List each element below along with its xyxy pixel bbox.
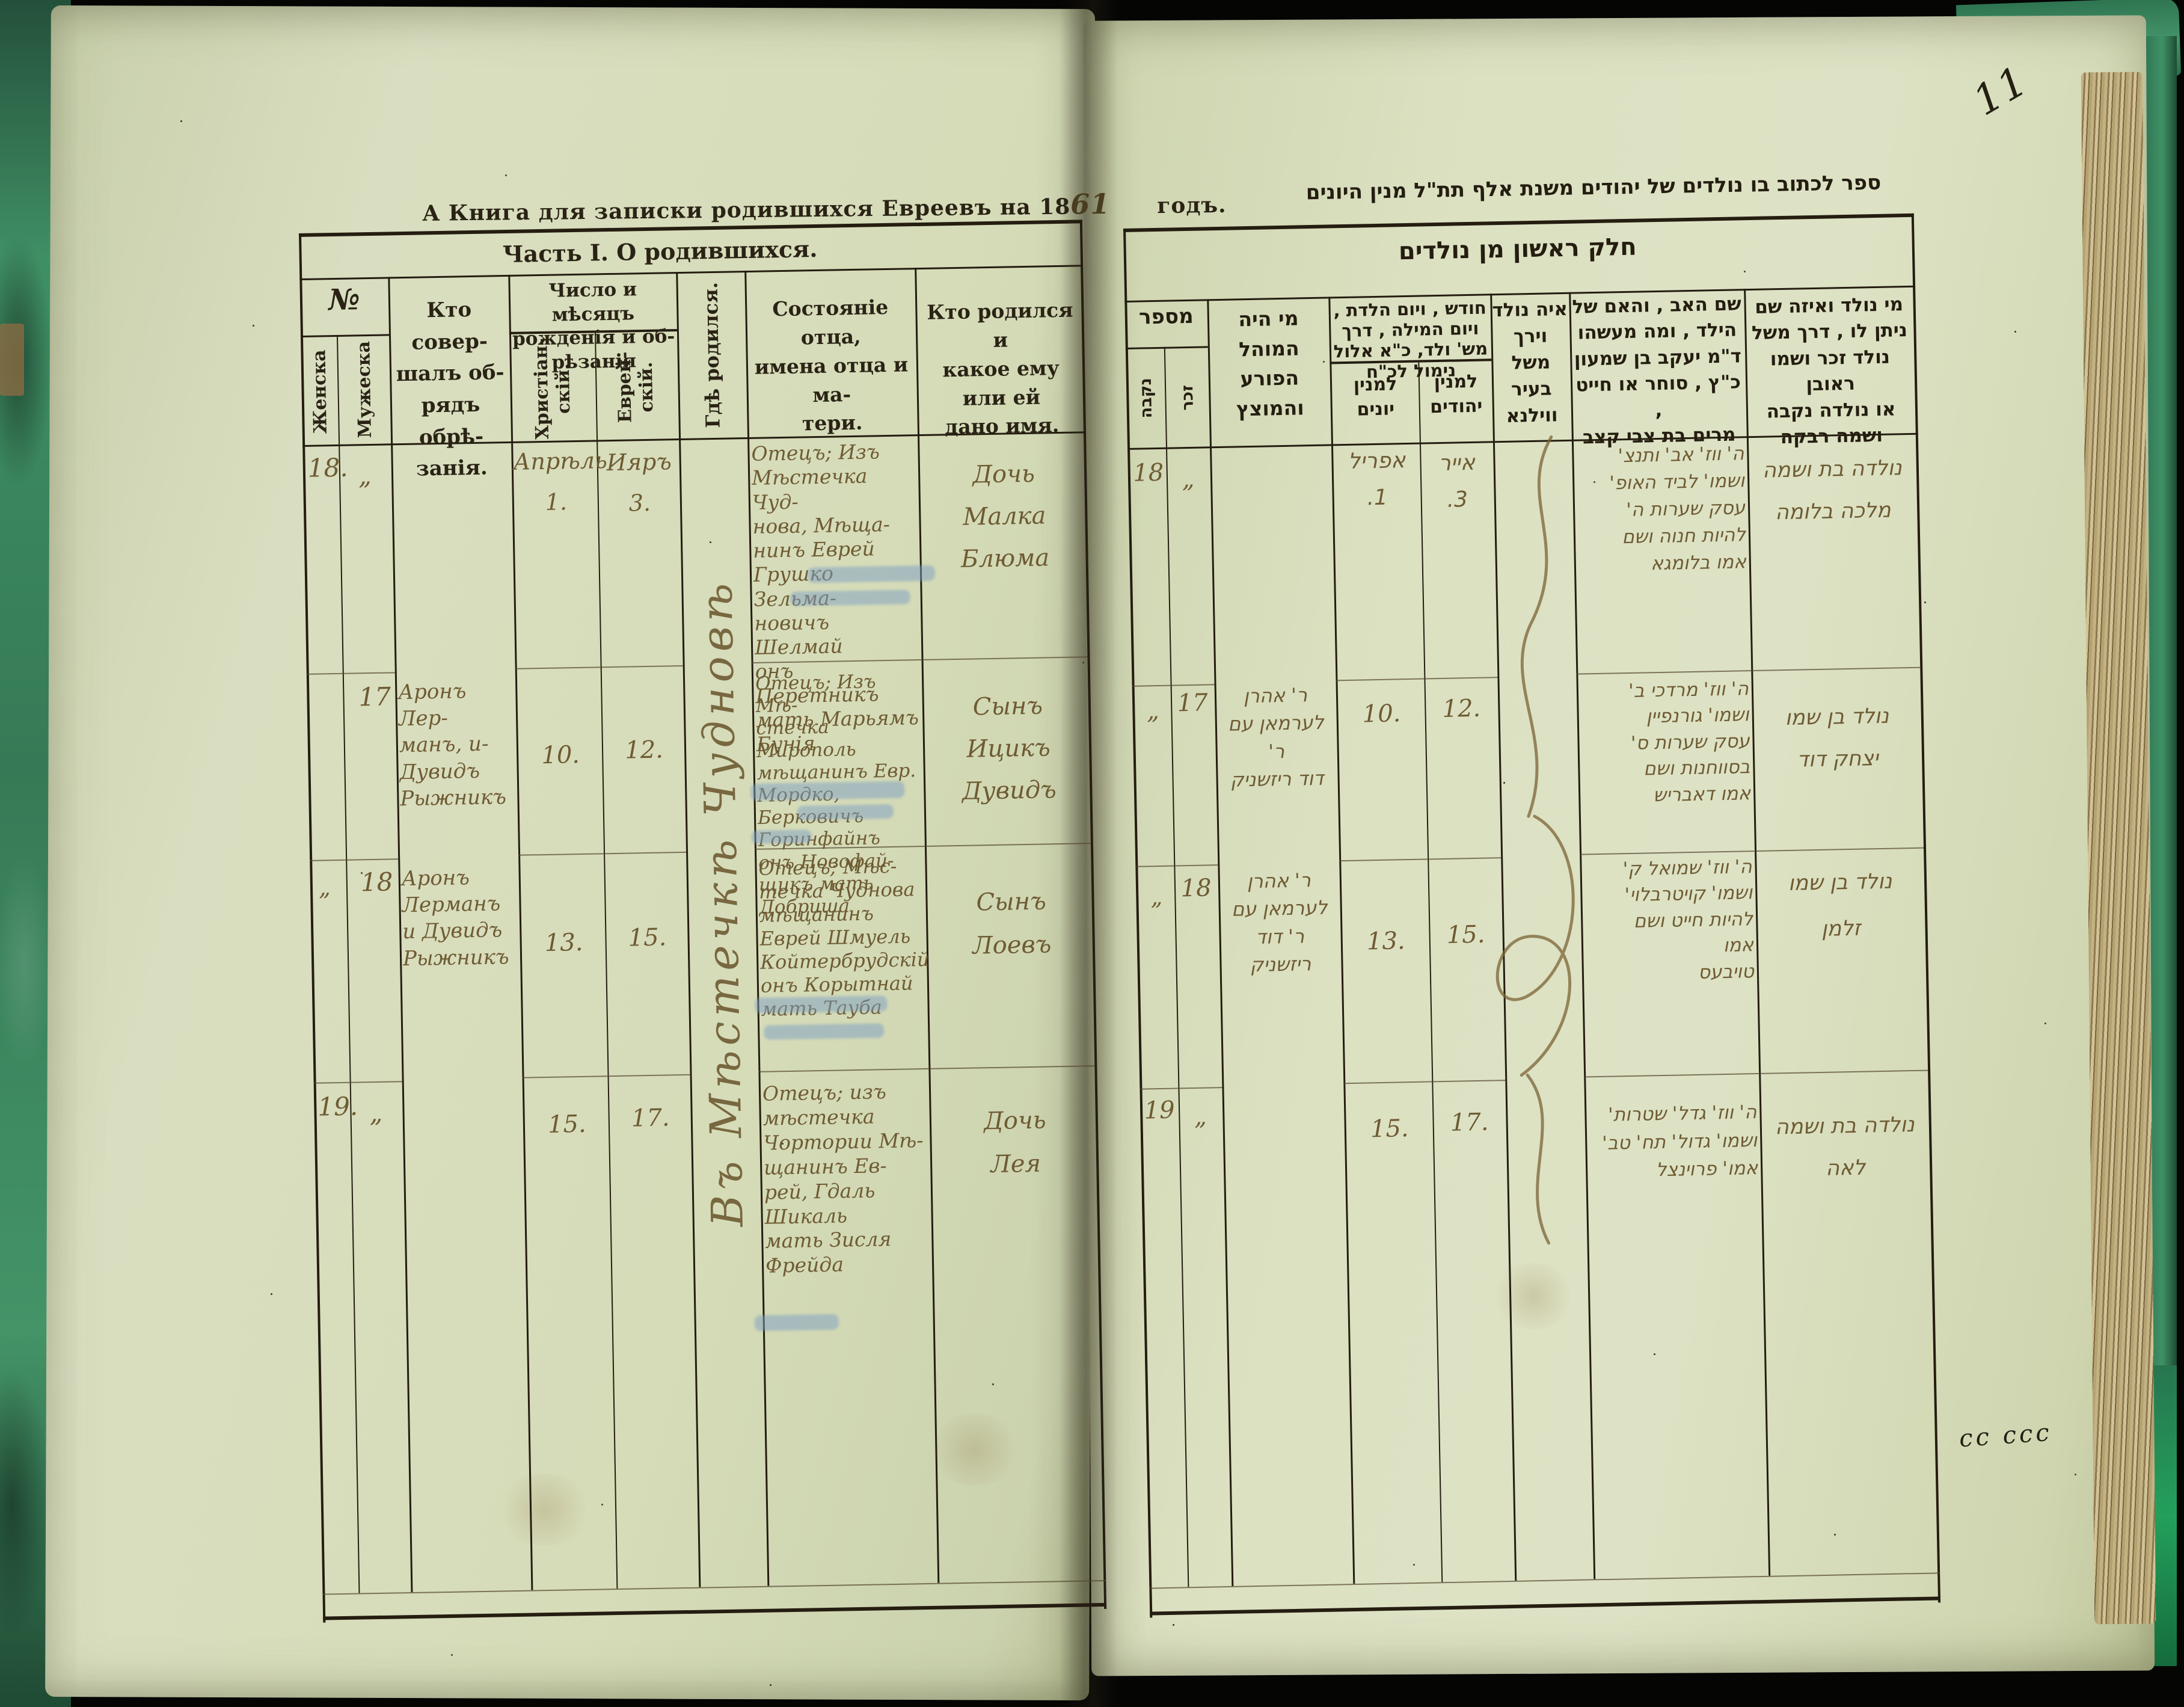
cell-r4-date-yevanim: 15. (1347, 1114, 1432, 1143)
rule-line (1149, 1572, 1940, 1589)
censor-smudge (797, 804, 894, 820)
cell-r4-child-he: נולדה בת ושמה לאה (1761, 1104, 1929, 1191)
rule-line (1150, 1596, 1940, 1615)
left-title-god: годъ. (1157, 192, 1227, 218)
col-header-where-he: איה נולד וירך משל בעיר ווילנא (1491, 296, 1570, 429)
cell-r3-child: Сынъ Лоевъ (930, 879, 1093, 968)
col-header-christian-label: Христіан- скій. (530, 337, 575, 440)
cell-r4-male-no: „ (369, 1098, 400, 1128)
row-separator (1336, 677, 1497, 681)
cell-r4-date-yehudim: 17. (1435, 1108, 1504, 1137)
censor-smudge (751, 829, 811, 844)
censor-smudge (755, 995, 887, 1013)
cell-r1-child: Дочь Малка Блюма (922, 452, 1087, 581)
cell-r3-performer: Аронъ Лерманъ и Дувидъ Рыжникъ (401, 864, 520, 972)
rule-line (322, 1580, 1106, 1595)
col-header-zakhar-label: זכר (1178, 385, 1197, 411)
cell-r2-male-no: 17 (358, 681, 395, 712)
cell-r1-male-no: „ (358, 460, 389, 490)
cell-r2-zakhar: 17 (1173, 689, 1212, 717)
scanned-metrical-book: А Книга для записки родившихся Евреевъ н… (0, 0, 2184, 1707)
cell-r4-jewish-date: 17. (610, 1104, 691, 1133)
row-separator (314, 1081, 402, 1084)
cell-r2-performer: Аронъ Лер- манъ, и- Дувидъ Рыжникъ (398, 677, 517, 812)
row-separator (758, 1065, 1094, 1072)
cell-r4-zakhar: „ (1181, 1103, 1220, 1131)
cell-r4-female-no: 19. (317, 1092, 352, 1122)
cell-r3-child-he: נולד בן שמו זלמן (1756, 858, 1924, 954)
cell-r3-father-he: ה' ווז' שמואל ק' ושמו' קויטרבלוי' להיות … (1581, 854, 1754, 988)
cell-r4-christian-date: 15. (525, 1110, 610, 1139)
cell-r2-mohel: ר' אהרן לערמאן עם ר' דוד ריזשניק (1216, 680, 1337, 794)
cell-r3-mohel: ר' אהרן לערמאן עם ר' דוד ריזשניק (1219, 866, 1340, 979)
col-header-female: Женска (302, 341, 337, 443)
col-header-nekeva-label: נקבה (1136, 378, 1155, 419)
col-header-male-label: Мужеска (353, 341, 376, 438)
col-header-female-label: Женска (308, 349, 331, 434)
col-header-father-he: שם האב , והאם של הילד , ומה מעשהו ד"מ יע… (1571, 291, 1745, 451)
cell-r1-zakhar: „ (1169, 465, 1208, 493)
col-header-performer: Кто совер- шалъ об- рядъ обрѣ- занія. (390, 294, 511, 485)
censor-smudge (750, 781, 904, 801)
left-table: Часть I. О родившихся. № Женска Мужеска … (299, 220, 1106, 1634)
cell-r2-jewish-date: 12. (604, 736, 685, 764)
row-separator (1135, 864, 1218, 867)
censor-smudge (755, 1314, 839, 1331)
cell-r3-zakhar: 18 (1177, 874, 1216, 902)
paper-speckle (180, 120, 182, 122)
cell-r1-nekeva: 18 (1131, 459, 1165, 487)
tape-mark (0, 324, 24, 396)
col-header-where-label: Гдѣ родился. (699, 281, 725, 428)
censor-smudge (764, 1023, 884, 1039)
cell-r2-nekeva: „ (1137, 697, 1169, 725)
col-header-minyan-yevanim: למנין יונים (1333, 372, 1419, 423)
rule-line (1126, 346, 1208, 349)
cell-r4-child: Дочь Лея (933, 1098, 1097, 1187)
row-separator (1132, 684, 1215, 687)
cell-r1-date-yevanim: אפריל 1. (1334, 442, 1420, 517)
col-header-christian: Христіан- скій. (531, 337, 575, 440)
censor-smudge (790, 589, 910, 606)
row-separator (515, 665, 683, 669)
left-title-year-handwritten: 61 (1070, 188, 1111, 221)
row-separator (1576, 667, 1920, 675)
row-separator (1584, 1070, 1928, 1078)
row-separator (310, 858, 398, 861)
col-header-mispar: מספר (1124, 304, 1207, 330)
col-header-nekeva: נקבה (1127, 355, 1165, 441)
cell-r2-father-he: ה' ווז' מרדכי ב' ושמו' גורנפיין עסק שערו… (1578, 676, 1751, 810)
row-separator (1343, 1080, 1505, 1084)
right-table: חלק ראשון מן נולדים מספר נקבה זכר מי היה… (1123, 214, 1940, 1630)
rule-line (323, 1603, 1106, 1620)
cell-r3-date-yevanim: 13. (1343, 926, 1428, 956)
where-born-script-text: Въ Мѣстечкѣ Чудновѣ (691, 578, 753, 1227)
rule-line (1418, 363, 1443, 1582)
col-header-where: Гдѣ родился. (683, 274, 740, 436)
cell-r2-date-yehudim: 12. (1427, 694, 1496, 723)
col-header-jewish-label: Еврей- скій. (614, 351, 658, 423)
rule-line (1164, 347, 1189, 1587)
cell-r4-father: Отецъ; изъ мѣстечка Чортории Мѣ- щанинъ … (762, 1079, 932, 1279)
col-header-minyan-yehudim: למנין יהודים (1421, 369, 1492, 419)
row-separator (518, 852, 686, 856)
col-header-number: № (299, 282, 388, 318)
rule-line (337, 335, 360, 1593)
col-header-jewish: Еврей- скій. (614, 336, 658, 438)
cell-r3-date-yehudim: 15. (1431, 920, 1500, 949)
cell-r2-date-yevanim: 10. (1339, 700, 1424, 729)
cell-r2-child: Сынъ Ицикъ Дувидъ (926, 684, 1091, 813)
left-part-title: Часть I. О родившихся. (479, 235, 841, 268)
cell-r1-date-yehudim: אייר 3. (1422, 444, 1492, 519)
col-header-zakhar: זכר (1168, 354, 1207, 440)
censor-smudge (808, 565, 935, 583)
cell-r4-nekeva: 19 (1143, 1096, 1177, 1125)
cell-r3-christian-date: 13. (521, 928, 606, 957)
rule-line (301, 334, 389, 337)
cell-r4-father-he: ה' ווז' גדל' שטרות' ושמו' גדול' תח' טב' … (1586, 1098, 1758, 1186)
cell-r2-child-he: נולד בן שמו יצחק דוד (1753, 695, 1921, 782)
cell-r3-male-no: 18 (360, 867, 397, 897)
row-separator (523, 1074, 690, 1078)
col-header-father: Состояніе отца, имена отца и ма- тери. (746, 292, 916, 439)
cell-r1-child-he: נולדה בת ושמה מלכה בלומה (1749, 447, 1916, 534)
row-separator (307, 672, 395, 675)
col-header-who: Кто родился и какое ему или ей дано имя. (917, 295, 1085, 442)
cell-r2-christian-date: 10. (518, 740, 603, 769)
cell-r3-female-no: „ (319, 874, 343, 901)
col-header-mohel: מי היה המוהל הפורע והמוצץ (1209, 303, 1330, 425)
row-separator (1339, 857, 1501, 861)
col-header-who-he: מי נולד ואיזה שם ניתן לו , דרך משל נולד … (1746, 292, 1915, 452)
right-part-title: חלק ראשון מן נולדים (1322, 232, 1713, 266)
cell-r1-christian-date: Апрѣль 1. (513, 440, 598, 523)
cell-r1-jewish-date: Ияръ 3. (598, 441, 680, 524)
row-separator (1140, 1087, 1222, 1090)
cell-r1-father-he: ה' ווז' אב' ותנצ' ושמו' לביד האופ' עסק ש… (1574, 440, 1746, 579)
col-header-male: Мужеска (339, 337, 389, 441)
cell-r3-jewish-date: 15. (607, 923, 688, 952)
cell-r1-female-no: 18. (307, 453, 342, 483)
cell-r3-nekeva: „ (1141, 884, 1173, 911)
